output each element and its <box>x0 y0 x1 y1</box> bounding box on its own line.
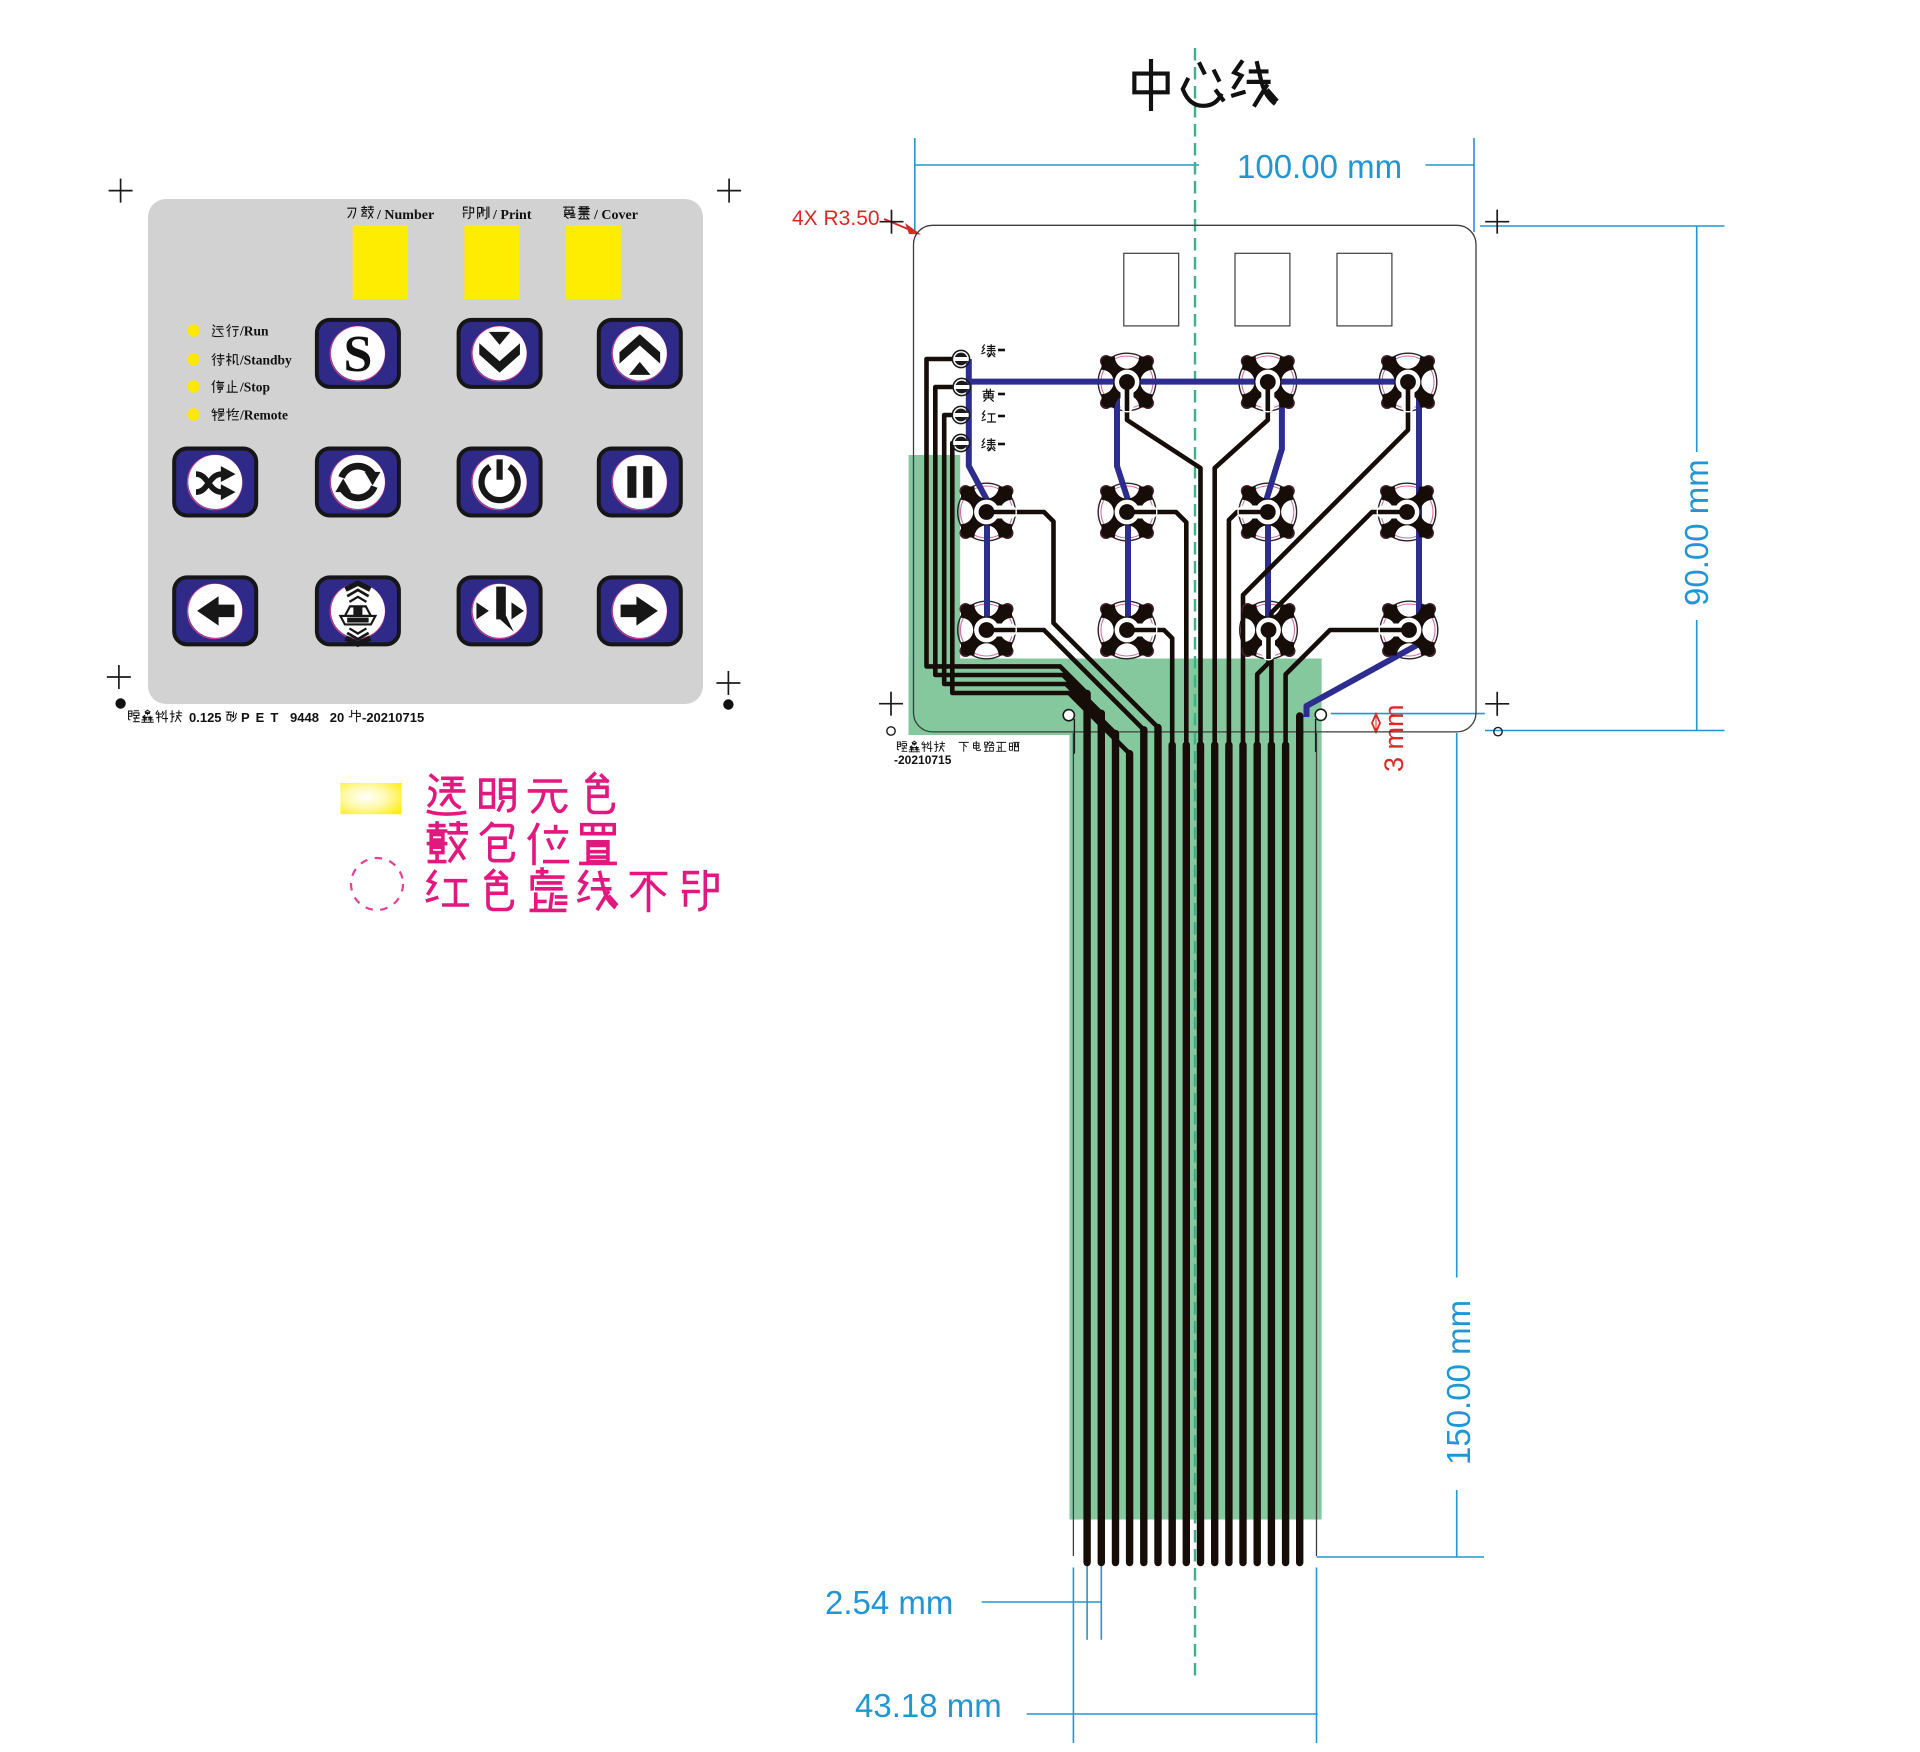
svg-text:/ Number: / Number <box>376 208 434 223</box>
svg-text:/ Cover: / Cover <box>593 208 638 223</box>
svg-text:/Run: /Run <box>239 324 269 339</box>
svg-text:PET: PET <box>241 710 284 725</box>
svg-text:/Stop: /Stop <box>239 380 270 395</box>
svg-text:90.00 mm: 90.00 mm <box>1678 459 1715 606</box>
svg-text:3 mm: 3 mm <box>1379 705 1409 773</box>
svg-text:-20210715: -20210715 <box>362 710 424 725</box>
svg-text:4X R3.50: 4X R3.50 <box>792 207 880 230</box>
svg-text:/ Print: / Print <box>492 208 532 223</box>
svg-text:43.18 mm: 43.18 mm <box>855 1687 1002 1724</box>
svg-text:100.00 mm: 100.00 mm <box>1237 148 1402 185</box>
svg-text:2.54 mm: 2.54 mm <box>825 1584 953 1621</box>
svg-text:/Remote: /Remote <box>239 408 288 423</box>
svg-text:S: S <box>343 326 372 383</box>
svg-text:9448 20: 9448 20 <box>290 710 344 725</box>
svg-text:/Standby: /Standby <box>239 353 292 368</box>
svg-text:150.00 mm: 150.00 mm <box>1440 1300 1477 1465</box>
svg-text:0.125: 0.125 <box>189 710 222 725</box>
svg-text:-20210715: -20210715 <box>894 753 952 767</box>
